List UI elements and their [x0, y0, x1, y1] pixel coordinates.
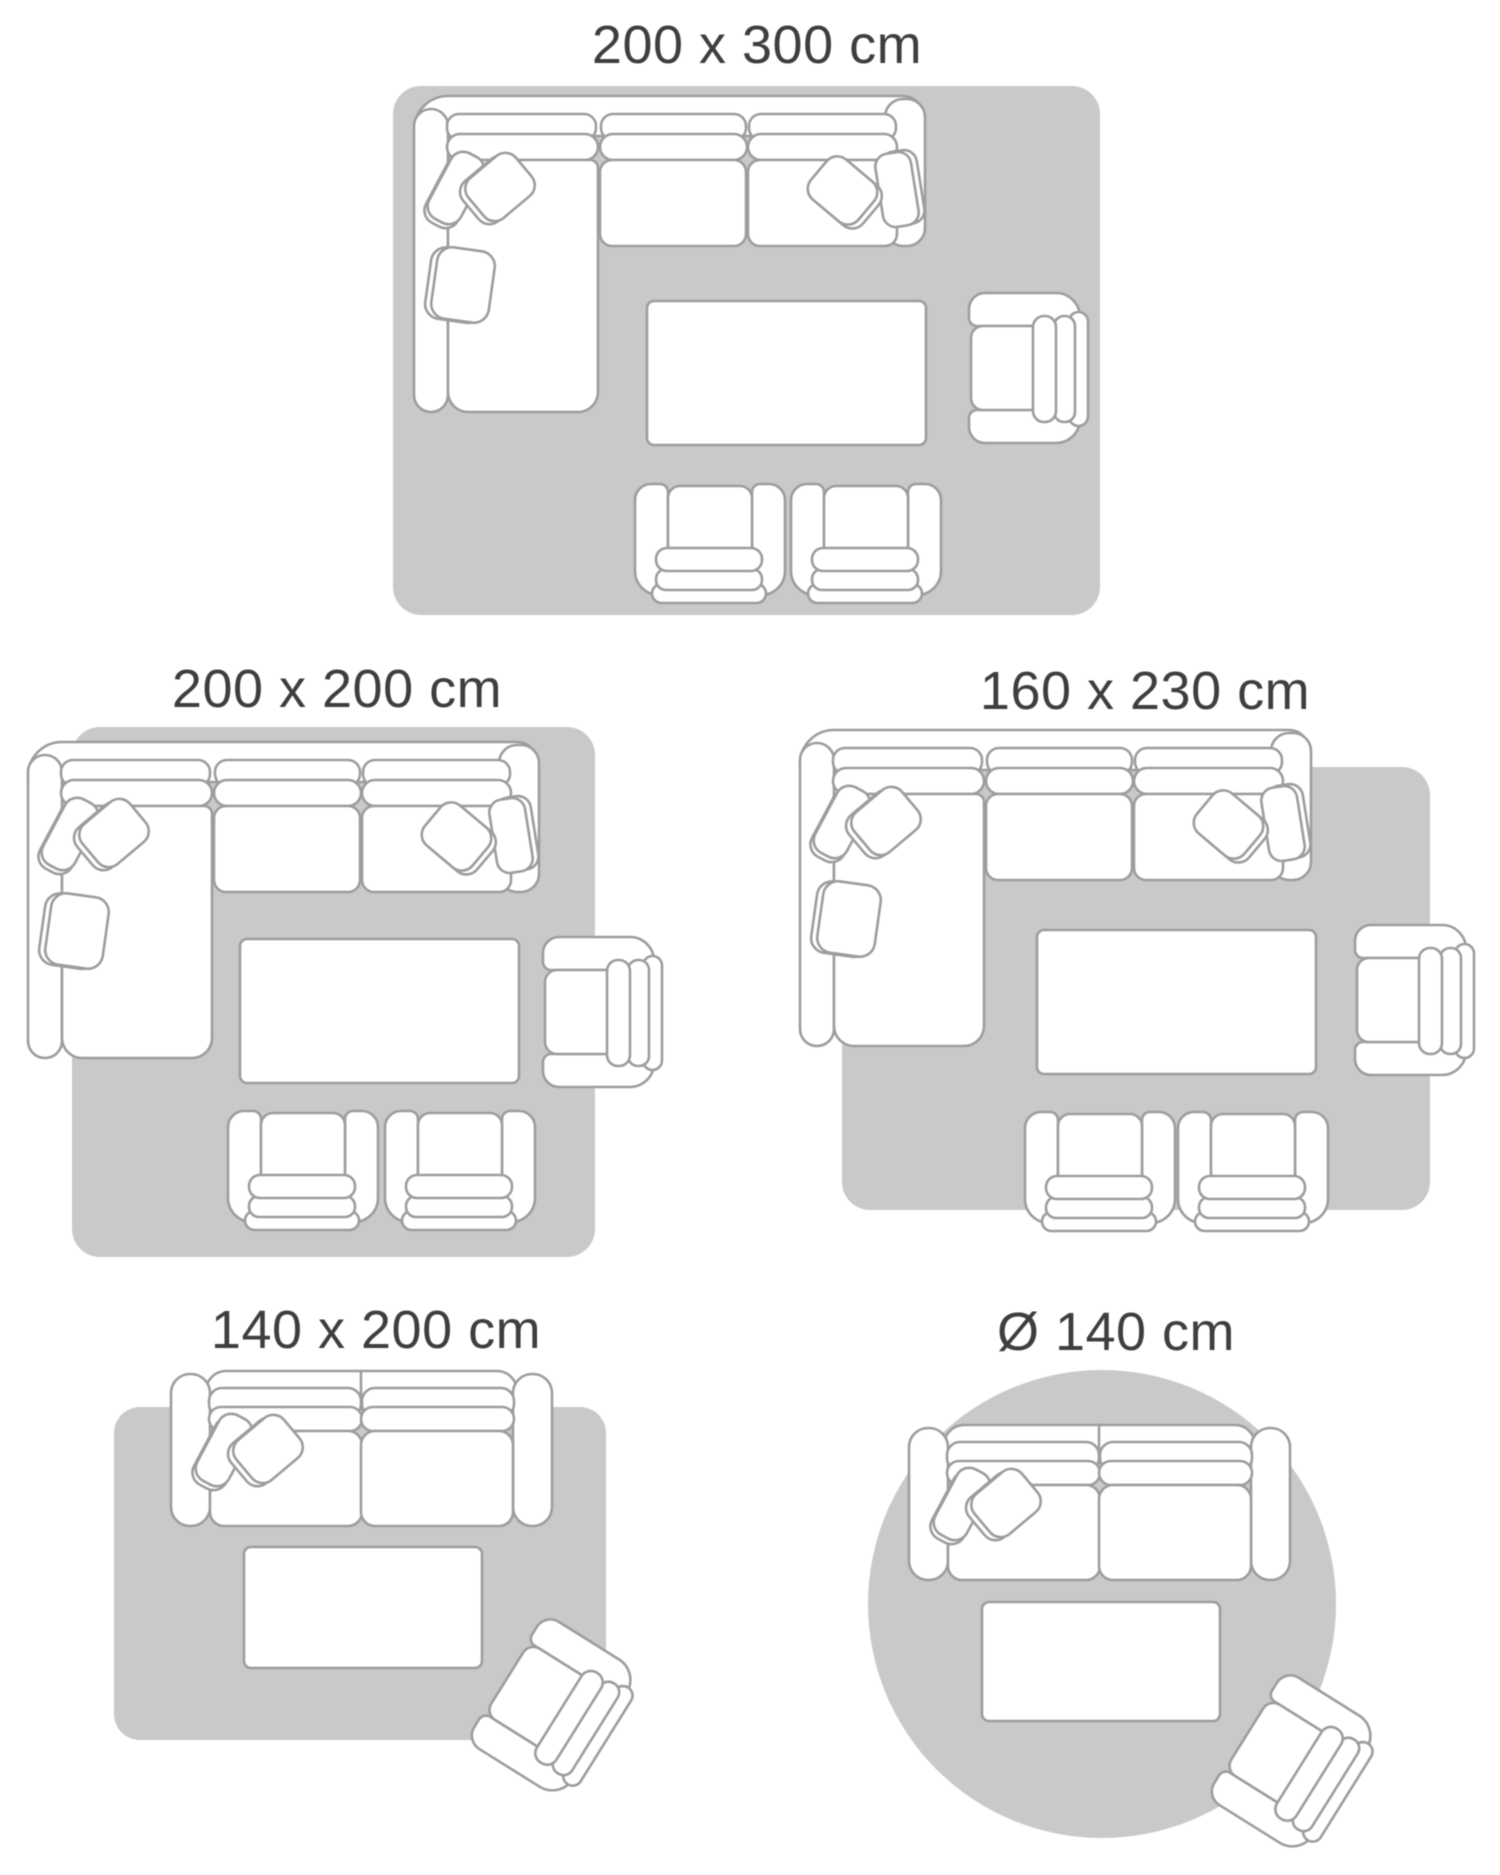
- svg-text:200 x 300 cm: 200 x 300 cm: [592, 15, 922, 75]
- svg-text:Ø 140 cm: Ø 140 cm: [997, 1302, 1235, 1362]
- svg-text:200 x 200 cm: 200 x 200 cm: [172, 659, 502, 719]
- svg-text:160 x 230 cm: 160 x 230 cm: [980, 661, 1310, 721]
- svg-text:140 x 200 cm: 140 x 200 cm: [211, 1300, 541, 1360]
